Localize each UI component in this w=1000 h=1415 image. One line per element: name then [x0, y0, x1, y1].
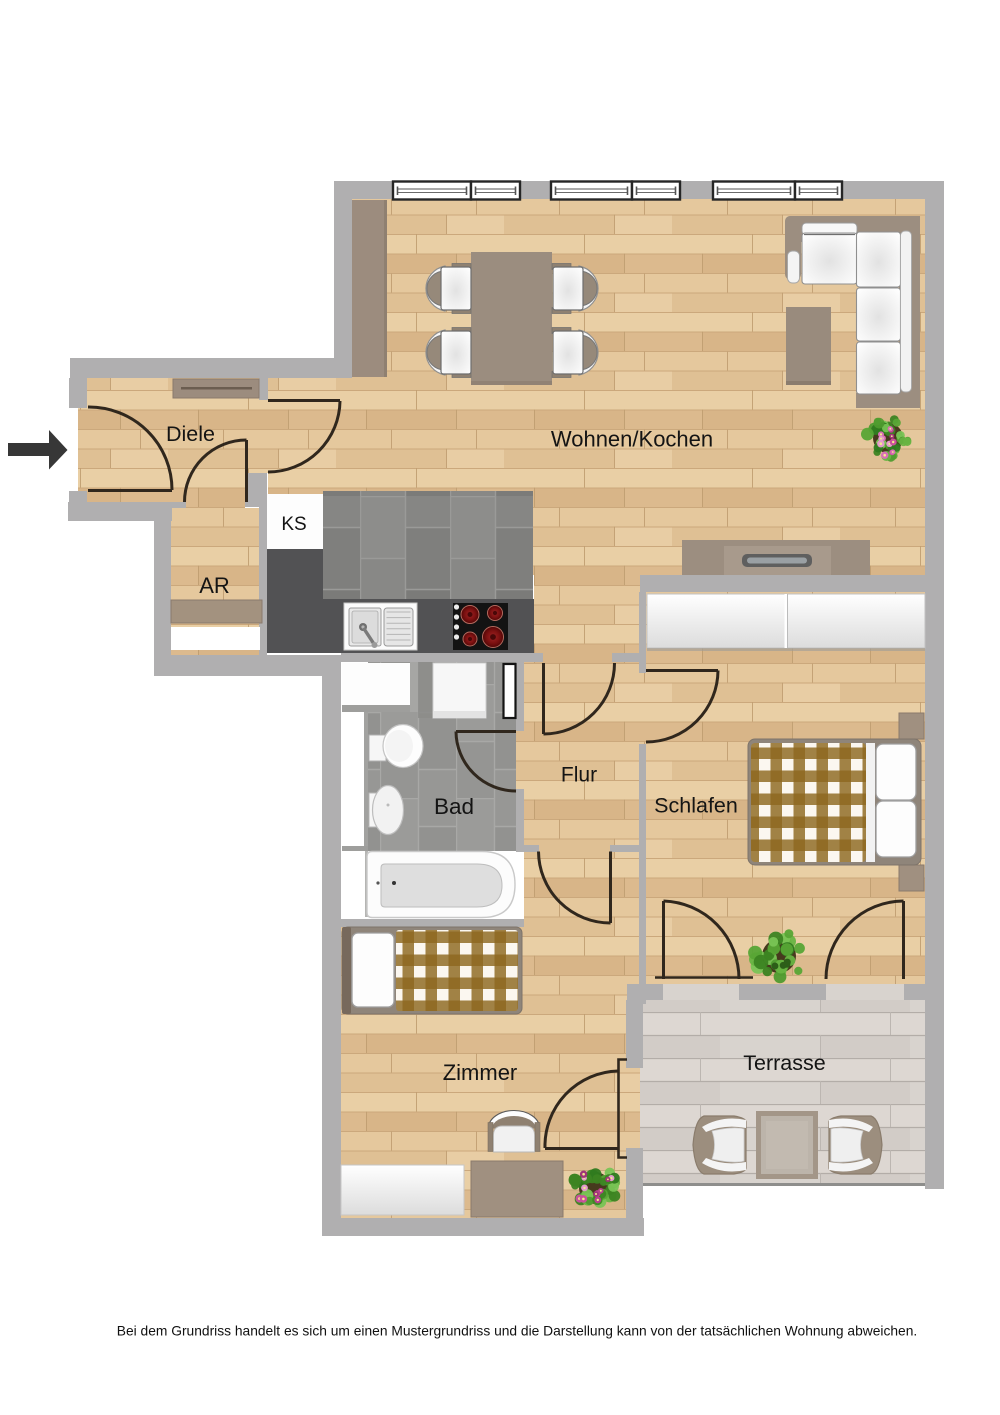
svg-text:KS: KS [281, 514, 306, 535]
svg-text:AR: AR [199, 573, 230, 598]
svg-text:Diele: Diele [166, 422, 215, 446]
svg-text:Bei dem Grundriss handelt es s: Bei dem Grundriss handelt es sich um ein… [117, 1324, 917, 1339]
svg-text:Terrasse: Terrasse [743, 1051, 825, 1075]
svg-text:Schlafen: Schlafen [654, 794, 738, 818]
svg-text:Bad: Bad [434, 794, 474, 819]
svg-text:Flur: Flur [561, 764, 597, 787]
svg-text:Wohnen/Kochen: Wohnen/Kochen [551, 427, 713, 452]
svg-text:Zimmer: Zimmer [443, 1060, 518, 1085]
